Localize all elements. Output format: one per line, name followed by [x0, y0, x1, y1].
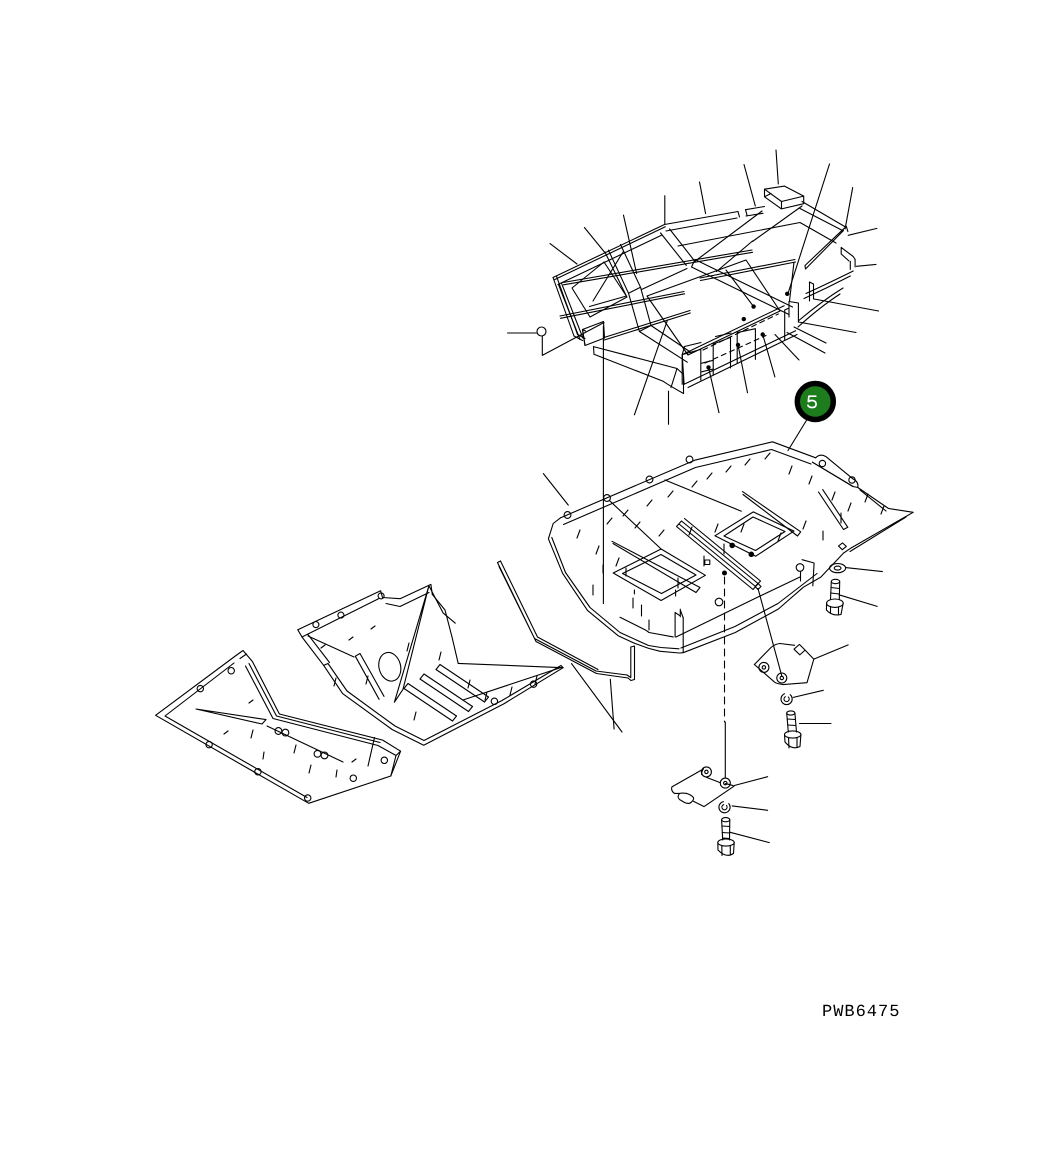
svg-text:PWB6475: PWB6475: [822, 1003, 900, 1022]
